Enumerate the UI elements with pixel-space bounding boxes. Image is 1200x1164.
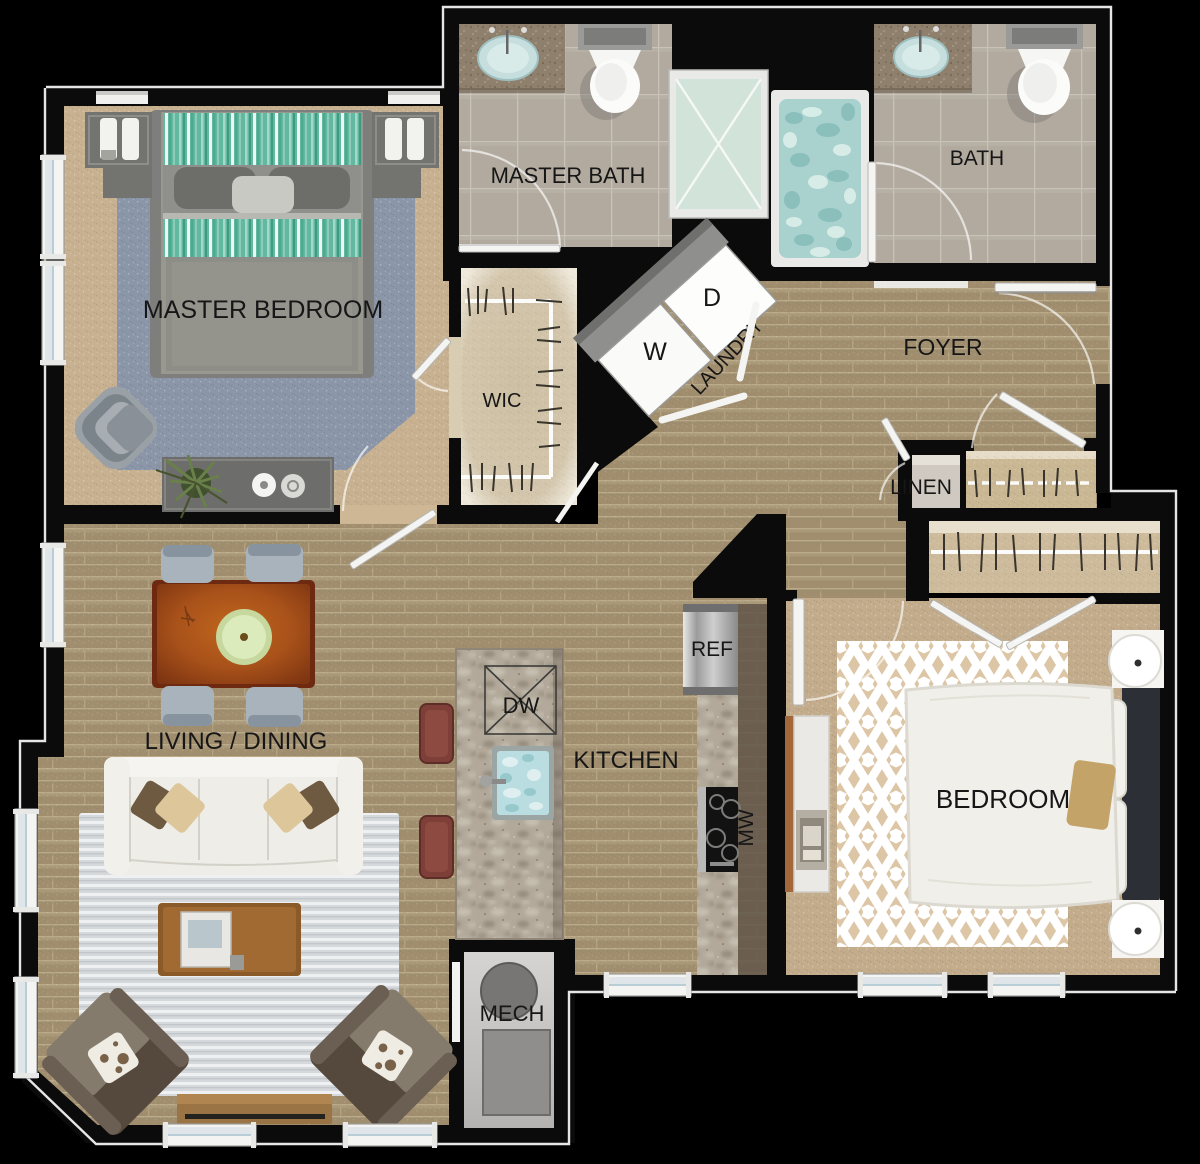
svg-text:KITCHEN: KITCHEN (573, 747, 678, 774)
svg-text:LINEN: LINEN (890, 476, 952, 499)
svg-text:W: W (643, 338, 667, 366)
svg-text:FOYER: FOYER (903, 334, 982, 360)
svg-text:MECH: MECH (480, 1001, 545, 1026)
svg-text:LIVING / DINING: LIVING / DINING (145, 728, 328, 755)
svg-text:DW: DW (503, 693, 540, 718)
svg-text:MASTER BEDROOM: MASTER BEDROOM (143, 296, 383, 324)
svg-text:WIC: WIC (483, 390, 522, 412)
svg-text:BATH: BATH (950, 147, 1004, 170)
svg-text:BEDROOM: BEDROOM (936, 784, 1070, 814)
svg-text:MW: MW (735, 809, 758, 846)
svg-text:D: D (703, 284, 721, 312)
svg-text:MASTER BATH: MASTER BATH (491, 163, 646, 188)
svg-text:REF: REF (691, 638, 733, 661)
